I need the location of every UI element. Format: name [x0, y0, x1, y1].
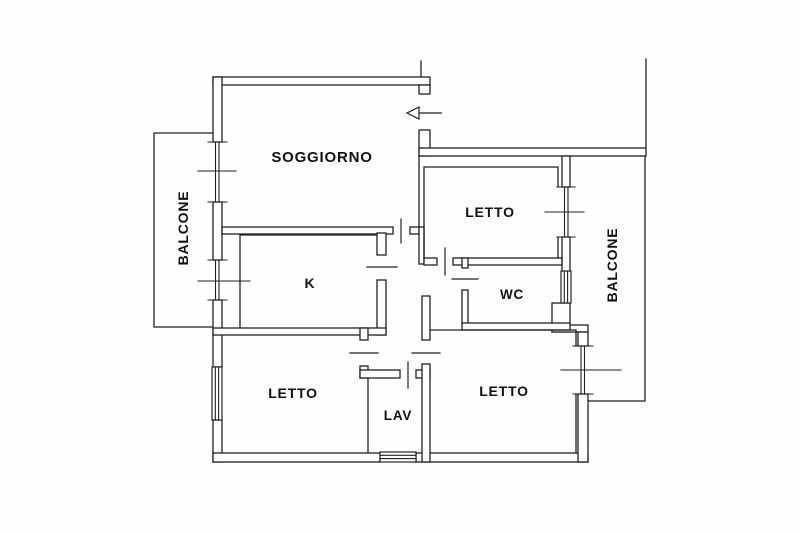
wall-lav-top-a	[360, 370, 400, 378]
window-letto-bl-fixed	[212, 367, 222, 420]
wall-letto-bl-hall-a	[360, 328, 368, 340]
entrance-jamb-upper	[419, 85, 430, 94]
wall-top	[213, 77, 430, 85]
wall-right-upper-a	[562, 156, 570, 187]
room-label-letto-bottom-right: LETTO	[479, 383, 529, 399]
wall-wc-bottom	[462, 323, 570, 330]
wall-hall-letto-br-b	[422, 364, 430, 462]
wall-wc-left-b	[462, 290, 468, 325]
wall-hall-letto-tr	[419, 227, 424, 264]
wall-letto-tr-bottom-a	[424, 258, 437, 265]
room-label-letto-top-right: LETTO	[465, 204, 515, 220]
wall-sog-bottom-a	[222, 227, 393, 234]
wall-k-right-b	[377, 280, 386, 335]
room-label-lav: LAV	[384, 408, 412, 423]
floor-plan-drawing: SOGGIORNOBALCONELETTOBALCONEKWCLETTOLAVL…	[0, 0, 800, 533]
window-soggiorno-balcony	[198, 142, 236, 202]
wall-right-lower-b	[578, 394, 588, 462]
floor-plan-page: SOGGIORNOBALCONELETTOBALCONEKWCLETTOLAVL…	[0, 0, 800, 533]
window-wc-fixed	[561, 271, 571, 303]
wall-k-right-a	[377, 233, 386, 255]
wall-right-upper-b	[562, 237, 570, 272]
window-kitchen-balcony	[198, 260, 250, 300]
entrance-arrow-head	[407, 107, 419, 119]
wall-bottom-b	[416, 453, 588, 462]
wall-wc-left-a	[462, 258, 468, 268]
wall-sog-bottom-b	[410, 227, 419, 234]
room-label-soggiorno: SOGGIORNO	[271, 149, 372, 166]
window-letto-br-balcony	[561, 346, 621, 394]
room-label-letto-bottom-left: LETTO	[268, 385, 318, 401]
window-letto-tr-balcony	[545, 187, 584, 237]
room-label-balcone-left: BALCONE	[175, 191, 191, 266]
wall-left-a	[213, 77, 222, 142]
wall-left-b	[213, 202, 222, 260]
room-label-kitchen: K	[305, 275, 316, 291]
window-lav-fixed	[380, 452, 416, 462]
wall-bottom-a	[213, 453, 380, 462]
room-label-wc: WC	[500, 287, 524, 302]
wall-right-lower-a	[578, 332, 588, 346]
wall-top-right	[419, 148, 646, 156]
wall-hall-letto-br-a	[422, 296, 430, 340]
room-label-balcone-right: BALCONE	[604, 228, 620, 303]
wall-letto-tr-bottom-b	[453, 258, 562, 265]
